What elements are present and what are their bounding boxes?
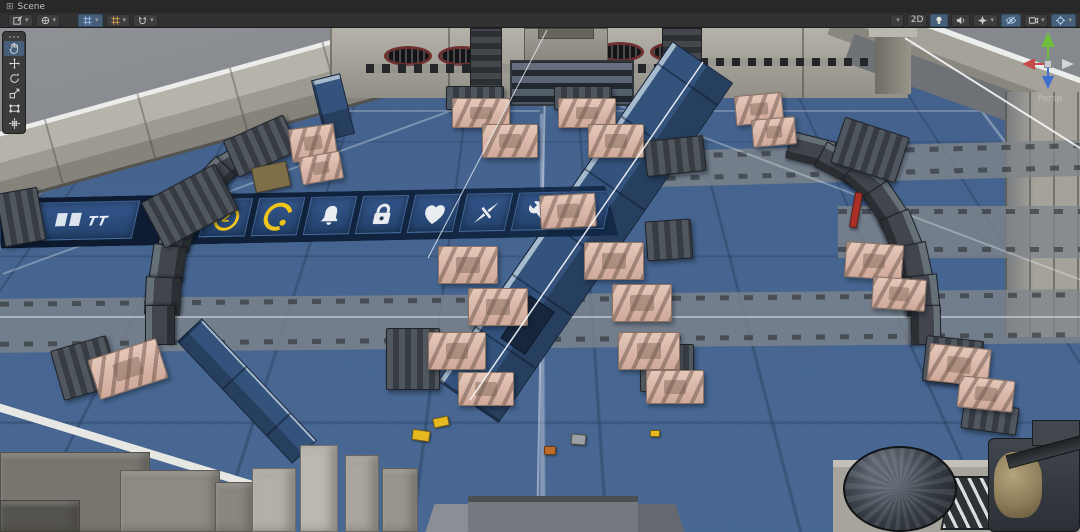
projection-label: Persp [1020,94,1080,104]
armored-vehicle[interactable] [645,218,694,261]
scene-tab[interactable]: ⊞ Scene [6,2,45,12]
2d-toggle[interactable]: 2D [907,14,928,27]
pickup-crate[interactable] [571,433,587,445]
scene-tab-bar: ⊞ Scene [0,0,1080,13]
right-axis-cone[interactable] [1062,59,1074,69]
concrete-pillar[interactable] [252,468,296,532]
dart-icon [459,193,514,232]
chevron-down-icon: ▾ [150,17,154,24]
pickup-crate[interactable] [650,430,660,437]
chevron-down-icon: ▾ [53,17,57,24]
rect-tool[interactable] [4,101,24,116]
tank[interactable] [539,193,597,230]
tank[interactable] [428,332,486,370]
tank[interactable] [612,284,672,322]
toolbar-group-grid: ▾▾▾ [78,14,158,27]
tank[interactable] [618,332,680,370]
concrete-pillar[interactable] [215,482,255,532]
scene-toolbar: ▾▾ ▾▾▾ ▾2D▾▾▾ [0,13,1080,28]
tank[interactable] [584,242,644,280]
view-orientation-gizmo[interactable]: Persp [1020,30,1080,108]
tank[interactable] [438,246,498,284]
grid-visibility-dropdown[interactable]: ▾ [78,14,103,27]
grid-icon [82,15,93,26]
toolbar-group-view: ▾2D▾▾▾ [890,14,1076,27]
wall-tower[interactable] [875,30,911,94]
chevron-down-icon: ▾ [1041,17,1045,24]
tank[interactable] [468,288,528,326]
lock-icon [355,195,410,234]
grid-orange-icon [110,15,121,26]
gizmo-tool-dropdown[interactable]: ▾ [36,14,61,27]
wall-vent [384,46,432,66]
tank[interactable] [458,372,514,406]
heart-icon [407,194,462,233]
tank[interactable] [482,124,538,158]
rotate-tool[interactable] [4,71,24,86]
magnet-icon [137,15,148,26]
camera-grid-icon [1028,15,1039,26]
toolbar-group-tools: ▾▾ [8,14,60,27]
audio-toggle[interactable] [951,14,970,27]
concrete-pillar[interactable] [382,468,418,532]
chevron-down-icon: ▾ [896,17,900,24]
2d-toggle-label: 2D [911,16,924,25]
lighting-toggle[interactable] [930,14,948,27]
tank[interactable] [751,116,797,148]
transform-tool[interactable] [4,116,24,131]
wall-tower-cap [869,28,917,37]
chevron-down-icon: ▾ [123,17,127,24]
bunker[interactable] [468,496,638,532]
armored-vehicle[interactable] [643,135,706,177]
overlay-drag-handle[interactable] [8,34,20,39]
pickup-crate[interactable] [411,429,430,442]
gate-crane [538,28,594,39]
concrete-block[interactable] [0,500,80,532]
snap-settings-dropdown[interactable]: ▾ [133,14,158,27]
tank[interactable] [956,375,1015,413]
speaker-icon [955,15,966,26]
visibility-toggle[interactable] [1001,14,1021,27]
chevron-down-icon: ▾ [990,17,994,24]
scene-tool-dropdown[interactable]: ▾ [8,14,33,27]
chevron-down-icon: ▾ [25,17,29,24]
tools-overlay [2,31,26,134]
pickup-crate[interactable] [544,446,556,455]
gizmo-hub[interactable] [1044,60,1052,68]
concrete-pillar[interactable] [300,445,338,532]
bell-icon [303,196,358,235]
camera-dropdown[interactable]: ▾ [1024,14,1049,27]
y-axis-stem [1047,47,1049,61]
pencil-square-icon [12,15,23,26]
tank[interactable] [588,124,644,158]
gizmo-icon [40,15,51,26]
wall-tread-strip [700,58,890,66]
geodesic-dome[interactable] [843,446,957,532]
eye-slash-icon [1005,15,1017,26]
chevron-down-icon: ▾ [1068,17,1072,24]
x-axis-cone[interactable] [1022,58,1035,70]
concrete-block[interactable] [120,470,220,532]
grid-snap-dropdown[interactable]: ▾ [106,14,131,27]
tank[interactable] [871,276,927,312]
star-icon [977,15,988,26]
scene-tab-icon: ⊞ [6,2,14,12]
concrete-pillar[interactable] [345,455,379,532]
z-axis-cone[interactable] [1042,76,1054,89]
coin-arc-icon [251,197,306,236]
gizmos-dropdown[interactable]: ▾ [1051,14,1076,27]
bulb-icon [934,15,944,26]
tank[interactable] [646,370,704,404]
unity-scene-view: TT ctrol 2 ⊞ Scene ▾▾ ▾▾▾ ▾2D▾▾▾ [0,0,1080,532]
scene-tab-title: Scene [18,2,45,12]
chevron-down-icon: ▾ [95,17,99,24]
move-tool[interactable] [4,56,24,71]
tank[interactable] [844,241,904,281]
crosshair-icon [1055,15,1066,26]
scale-tool[interactable] [4,86,24,101]
y-axis-cone[interactable] [1041,32,1055,47]
shading-mode-dropdown[interactable]: ▾ [890,14,904,27]
effects-dropdown[interactable]: ▾ [973,14,998,27]
hand-tool[interactable] [4,41,24,56]
